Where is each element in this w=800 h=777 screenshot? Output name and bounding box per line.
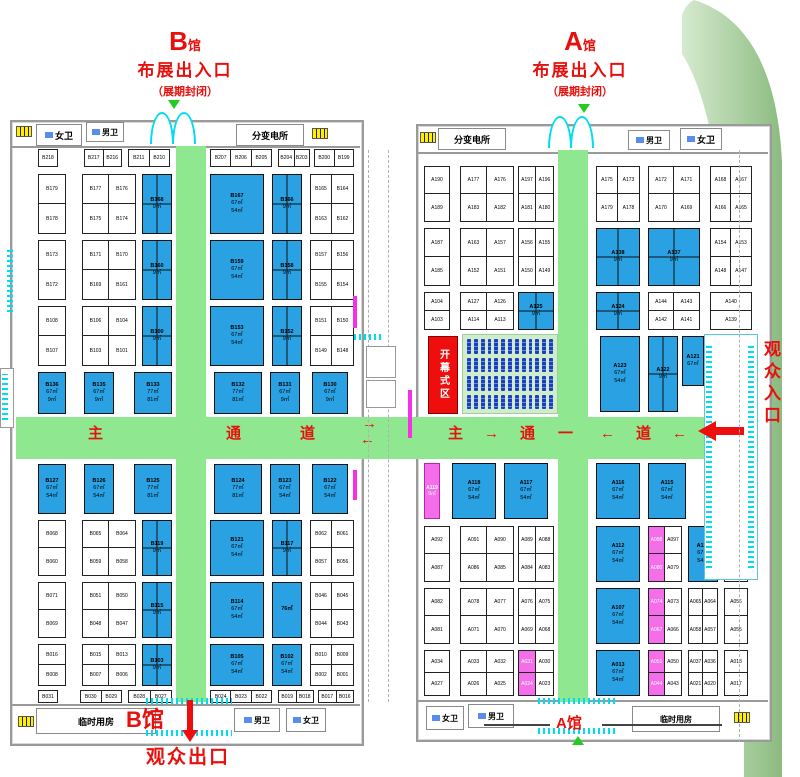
- booth-number: B016: [39, 645, 65, 665]
- booth-B158: B1589㎡: [272, 240, 302, 300]
- booth-number: A034: [425, 651, 449, 673]
- booth-line: 77㎡: [147, 485, 159, 492]
- exit-arrow-shaft: [187, 700, 193, 732]
- visitor-entrance-label: 观众入口: [762, 340, 779, 428]
- booth-number: A151: [487, 257, 513, 285]
- ceremony-seating: [462, 334, 558, 414]
- booth-A121: A12167㎡: [682, 336, 704, 386]
- booth-number: B216: [104, 150, 122, 166]
- booth-B133: B13377㎡81㎡: [134, 372, 172, 414]
- booth-B177: B177B176B175B174: [82, 174, 136, 234]
- corridor-room: [366, 346, 396, 378]
- seat-block: [467, 339, 471, 354]
- seat-block: [542, 395, 546, 410]
- booth-B173: B173B172: [38, 240, 66, 300]
- booth-B015: B015B013B007B006: [82, 644, 136, 686]
- aisle-text: 主: [88, 426, 103, 441]
- booth-number: A064: [703, 589, 717, 616]
- booth-line: A124: [611, 304, 624, 311]
- booth-line: 67㎡: [279, 389, 291, 396]
- booth-number: A076: [519, 589, 536, 616]
- seat-block: [474, 339, 478, 354]
- booth-A175: A175A173A179A178: [596, 166, 640, 222]
- seat-block: [515, 339, 519, 354]
- booth-B065: B065B064B059B058: [82, 520, 136, 576]
- seat-block: [467, 395, 471, 410]
- booth-number: A050: [665, 651, 681, 673]
- booth-B122: B12267㎡54㎡: [312, 464, 348, 514]
- seat-block: [542, 358, 546, 373]
- booth-number: A179: [597, 194, 618, 221]
- booth-number: A155: [536, 229, 553, 257]
- booth-B131: B13167㎡9㎡: [270, 372, 300, 414]
- booth-number: A020: [703, 673, 717, 695]
- booth-number: A032: [487, 651, 513, 673]
- booth-number: B046: [311, 583, 332, 610]
- seat-block: [508, 395, 512, 410]
- booth-line: 67㎡: [520, 487, 532, 494]
- aisle-text: 主: [448, 426, 463, 441]
- booth-number: A026: [461, 673, 487, 695]
- booth-number: A176: [487, 167, 513, 194]
- seat-block: [508, 376, 512, 391]
- booth-number: A197: [519, 167, 536, 194]
- booth-line: 76㎡: [281, 606, 293, 613]
- booth-number: B155: [311, 270, 332, 299]
- booth-A089: A089A088A084A083: [518, 526, 554, 582]
- booth-number: A080: [649, 554, 665, 581]
- booth-number: B176: [109, 175, 135, 204]
- booth-A034: A034A027: [424, 650, 450, 696]
- booth-line: 54㎡: [46, 493, 58, 500]
- booth-number: B044: [311, 610, 332, 637]
- booth-number: B179: [39, 175, 65, 204]
- booth-number: B059: [83, 548, 109, 575]
- booth-number: B108: [39, 307, 65, 336]
- booth-line: A122: [656, 367, 669, 374]
- booth-A033: A033A032A026A025: [460, 650, 514, 696]
- seat-block: [474, 376, 478, 391]
- booth-A156: A156A155A150A149: [518, 228, 554, 286]
- booth-number: A127: [461, 293, 487, 311]
- equipment-icon: [420, 132, 436, 143]
- booth-A104: A104A103: [424, 292, 450, 330]
- seat-block: [508, 358, 512, 373]
- booth-line: 67㎡: [93, 485, 105, 492]
- booth-A074: A074A073A067A066: [648, 588, 682, 644]
- booth-number: A023: [536, 673, 553, 695]
- booth-line: B115: [151, 603, 164, 610]
- booth-line: 9㎡: [283, 548, 292, 555]
- hall-a-suffix: 馆: [583, 38, 596, 53]
- booth-number: B170: [109, 241, 135, 270]
- booth-number: A104: [425, 293, 449, 311]
- booth-number: B043: [332, 610, 353, 637]
- booth-number: A175: [597, 167, 618, 194]
- booth-number: A084: [519, 554, 536, 581]
- booth-number: B048: [83, 610, 109, 637]
- booth-number: A073: [665, 589, 681, 616]
- booth-number: A017: [725, 673, 747, 695]
- booth-line: 9㎡: [153, 270, 162, 277]
- booth-line: 9㎡: [283, 270, 292, 277]
- booth-line: 54㎡: [520, 495, 532, 502]
- booth-number: B002: [311, 665, 332, 685]
- booth-line: A137: [667, 250, 680, 257]
- booth-B211: B211B210: [128, 149, 170, 167]
- booth-A140: A140A139: [710, 292, 752, 330]
- booth-line: 67㎡: [46, 389, 58, 396]
- seat-block: [488, 339, 492, 354]
- booth-line: 9㎡: [532, 311, 541, 318]
- booth-A091: A091A090A086A085: [460, 526, 514, 582]
- booth-line: 54㎡: [612, 677, 624, 684]
- room-substation-b: 分变电所: [236, 124, 304, 146]
- booth-number: A027: [425, 673, 449, 695]
- booth-number: A149: [536, 257, 553, 285]
- booth-number: A087: [425, 554, 449, 581]
- seat-block: [535, 395, 539, 410]
- booth-line: 9㎡: [326, 397, 335, 404]
- booth-line: 67㎡: [612, 612, 624, 619]
- booth-number: B174: [109, 204, 135, 233]
- ceremony-label: 开幕式区: [436, 349, 451, 401]
- booth-B152: B1529㎡: [272, 306, 302, 366]
- booth-A119: A1199㎡: [424, 463, 440, 519]
- booth-B217: B217B216: [84, 149, 122, 167]
- booth-number: A083: [536, 554, 553, 581]
- booth-A138: A1389㎡: [596, 228, 640, 286]
- booth-line: 54㎡: [612, 620, 624, 627]
- seat-block: [494, 395, 498, 410]
- booth-number: B151: [311, 307, 332, 336]
- booth-number: A070: [487, 616, 513, 643]
- booth-A177: A177A176A183A182: [460, 166, 514, 222]
- booth-number: A078: [461, 589, 487, 616]
- booth-line: 67㎡: [612, 550, 624, 557]
- seat-block: [481, 358, 485, 373]
- seat-block: [501, 339, 505, 354]
- booth-number: A067: [649, 616, 665, 643]
- booth-A056: A056A055: [724, 588, 748, 644]
- booth-B204: B204B203: [278, 149, 310, 167]
- booth-line: 67㎡: [231, 200, 243, 207]
- booth-line: 67㎡: [231, 544, 243, 551]
- seat-block: [522, 339, 526, 354]
- booth-number: A097: [665, 527, 681, 554]
- booth-number: A082: [425, 589, 449, 616]
- booth-A013: A01367㎡54㎡: [596, 650, 640, 696]
- booth-number: A055: [725, 616, 747, 643]
- booth-number: A092: [425, 527, 449, 554]
- booth-A018: A018A017: [724, 650, 748, 696]
- booth-number: A168: [711, 167, 731, 194]
- booth-B071: B071B069: [38, 582, 66, 638]
- booth-B100: B1009㎡: [142, 306, 172, 366]
- seat-block: [529, 358, 533, 373]
- folding-door-icon: [354, 334, 384, 340]
- booth-number: A018: [725, 651, 747, 673]
- booth-A118: A11867㎡54㎡: [452, 463, 496, 519]
- booth-line: 67㎡: [324, 485, 336, 492]
- booth-number: A066: [665, 616, 681, 643]
- booth-line: A121: [686, 354, 699, 361]
- booth-number: B009: [332, 645, 353, 665]
- seat-block: [481, 395, 485, 410]
- booth-layer: B218B217B216B211B210B207B206B205B204B203…: [0, 0, 800, 777]
- booth-number: A182: [487, 194, 513, 221]
- booth-line: B117: [281, 541, 294, 548]
- booth-line: 54㎡: [231, 552, 243, 559]
- booth-number: B205: [252, 150, 271, 166]
- gate-marker-icon: [578, 104, 590, 113]
- booth-number: B010: [311, 645, 332, 665]
- booth-line: 9㎡: [153, 610, 162, 617]
- booth-A078: A078A077A071A070: [460, 588, 514, 644]
- booth-number: B207: [211, 150, 231, 166]
- booth-B200: B200B199: [314, 149, 354, 167]
- booth-B115: B1159㎡: [142, 582, 172, 638]
- booth-A127: A127A126A114A113: [460, 292, 514, 330]
- booth-B016: B016B008: [38, 644, 66, 686]
- booth-number: B050: [109, 583, 135, 610]
- booth-number: A189: [425, 194, 449, 221]
- aisle-text: 一: [558, 426, 573, 441]
- booth-line: 54㎡: [231, 274, 243, 281]
- booth-number: A098: [649, 527, 665, 554]
- booth-number: B017: [319, 691, 337, 702]
- booth-number: B149: [311, 336, 332, 365]
- exit-arrow-icon: [182, 730, 198, 742]
- booth-number: A169: [674, 194, 699, 221]
- booth-number: B210: [150, 150, 170, 166]
- equipment-icon: [312, 128, 328, 139]
- booth-line: 54㎡: [468, 495, 480, 502]
- seat-block: [474, 358, 478, 373]
- booth-line: 67㎡: [279, 485, 291, 492]
- booth-line: 9㎡: [48, 397, 57, 404]
- booth-line: 9㎡: [153, 204, 162, 211]
- booth-A124: A1249㎡: [596, 292, 640, 330]
- booth-A115: A11567㎡54㎡: [648, 463, 686, 519]
- booth-B160: B1609㎡: [142, 240, 172, 300]
- booth-B207: B207B206B205: [210, 149, 272, 167]
- booth-A107: A10767㎡54㎡: [596, 588, 640, 644]
- booth-number: A156: [519, 229, 536, 257]
- folding-door-icon: [706, 344, 712, 568]
- booth-B117: B1179㎡: [272, 520, 302, 576]
- booth-line: 67㎡: [231, 661, 243, 668]
- booth-line: 81㎡: [147, 493, 159, 500]
- booth-B105: B10567㎡54㎡: [210, 644, 264, 686]
- entrance-arrow-icon: [698, 421, 716, 441]
- booth-line: 81㎡: [147, 397, 159, 404]
- dashed-line: [368, 150, 369, 702]
- seat-block: [535, 376, 539, 391]
- booth-number: A090: [487, 527, 513, 554]
- booth-A123: A12367㎡54㎡: [600, 336, 640, 412]
- booth-line: 54㎡: [231, 669, 243, 676]
- booth-line: B160: [150, 263, 163, 270]
- booth-B108: B108B107: [38, 306, 66, 366]
- booth-A082: A082A081: [424, 588, 450, 644]
- booth-number: B154: [332, 270, 353, 299]
- booth-A137: A1379㎡: [648, 228, 700, 286]
- booth-B166: B1669㎡: [272, 174, 302, 234]
- main-aisle-vertical-B: [176, 146, 206, 702]
- wall-segment: [602, 724, 722, 726]
- booth-B136: B13667㎡9㎡: [38, 372, 66, 414]
- booth-76㎡: 76㎡: [272, 582, 302, 638]
- seat-block: [467, 376, 471, 391]
- booth-number: A150: [519, 257, 536, 285]
- booth-A168: A168A167A166A165: [710, 166, 752, 222]
- room-female-wc-b-bottom: 女卫: [286, 708, 326, 732]
- booth-line: A138: [611, 250, 624, 257]
- seat-block: [481, 339, 485, 354]
- room-female-wc-b-top: 女卫: [36, 124, 82, 146]
- wall-segment: [484, 724, 550, 726]
- room-male-wc-b-bottom: 男卫: [234, 708, 280, 732]
- booth-number: B200: [315, 150, 335, 166]
- aisle-text: 道: [636, 426, 651, 441]
- booth-A112: A11267㎡54㎡: [596, 526, 640, 582]
- folding-door-icon: [748, 344, 754, 568]
- booth-B030: B030B029: [80, 690, 122, 703]
- booth-line: 67㎡: [612, 669, 624, 676]
- aisle-text: ←: [672, 426, 687, 441]
- booth-number: A077: [487, 589, 513, 616]
- booth-B051: B051B050B048B047: [82, 582, 136, 638]
- booth-B130: B13067㎡9㎡: [312, 372, 348, 414]
- booth-number: B001: [332, 665, 353, 685]
- hall-b-gate-title: B馆 布展出入口 （展期封闭）: [105, 28, 265, 99]
- booth-number: A144: [649, 293, 674, 311]
- booth-A065: A065A064A058A057: [688, 588, 718, 644]
- booth-number: A081: [425, 616, 449, 643]
- booth-line: 9㎡: [153, 665, 162, 672]
- booth-number: B008: [39, 665, 65, 685]
- booth-number: B218: [39, 150, 57, 166]
- hall-a-entrance-label: A馆: [556, 712, 582, 733]
- booth-number: B171: [83, 241, 109, 270]
- booth-B106: B106B104B103B101: [82, 306, 136, 366]
- booth-A187: A187A185: [424, 228, 450, 286]
- booth-number: A065: [689, 589, 703, 616]
- booth-number: A172: [649, 167, 674, 194]
- booth-line: 9㎡: [153, 548, 162, 555]
- booth-number: B178: [39, 204, 65, 233]
- booth-number: B204: [279, 150, 295, 166]
- booth-line: 54㎡: [661, 495, 673, 502]
- booth-B165: B165B164B163B162: [310, 174, 354, 234]
- equipment-icon: [18, 716, 34, 727]
- booth-number: A147: [731, 257, 751, 285]
- booth-line: 67㎡: [661, 487, 673, 494]
- booth-line: 54㎡: [231, 340, 243, 347]
- booth-B102: B10267㎡54㎡: [272, 644, 302, 686]
- booth-number: B164: [332, 175, 353, 204]
- booth-number: B157: [311, 241, 332, 270]
- booth-B125: B12577㎡81㎡: [134, 464, 172, 514]
- room-female-wc-a-top: 女卫: [680, 128, 722, 150]
- seat-block: [549, 339, 553, 354]
- booth-A031: A031A030A024A023: [518, 650, 554, 696]
- folding-door-icon: [2, 374, 8, 420]
- booth-number: A024: [519, 673, 536, 695]
- booth-number: A044: [649, 673, 665, 695]
- booth-number: B007: [83, 665, 109, 685]
- booth-number: A126: [487, 293, 513, 311]
- booth-number: A190: [425, 167, 449, 194]
- booth-number: A157: [487, 229, 513, 257]
- booth-line: 67㎡: [468, 487, 480, 494]
- booth-line: 67㎡: [612, 487, 624, 494]
- booth-B103: B1039㎡: [142, 644, 172, 686]
- booth-number: B006: [109, 665, 135, 685]
- booth-number: B169: [83, 270, 109, 299]
- booth-number: A025: [487, 673, 513, 695]
- booth-number: A180: [536, 194, 553, 221]
- booth-line: 67㎡: [687, 361, 699, 368]
- booth-B159: B15967㎡54㎡: [210, 240, 264, 300]
- booth-number: B015: [83, 645, 109, 665]
- booth-number: B150: [332, 307, 353, 336]
- booth-number: B060: [39, 548, 65, 575]
- booth-number: B104: [109, 307, 135, 336]
- booth-B153: B15367㎡54㎡: [210, 306, 264, 366]
- booth-line: 9㎡: [428, 491, 436, 498]
- booth-number: B162: [332, 204, 353, 233]
- booth-line: 9㎡: [95, 397, 104, 404]
- booth-number: A153: [731, 229, 751, 257]
- booth-number: B058: [109, 548, 135, 575]
- booth-number: B045: [332, 583, 353, 610]
- booth-line: 9㎡: [153, 336, 162, 343]
- hall-b-gate-line2: 布展出入口: [105, 56, 265, 81]
- booth-line: 77㎡: [232, 389, 244, 396]
- booth-number: B068: [39, 521, 65, 548]
- hall-b-exit-label: B馆: [126, 702, 164, 734]
- booth-number: B018: [297, 691, 314, 702]
- seat-block: [474, 395, 478, 410]
- booth-number: A103: [425, 311, 449, 329]
- aisle-text: →: [484, 426, 499, 441]
- booth-B157: B157B156B155B154: [310, 240, 354, 300]
- booth-A098: A098A097A080A079: [648, 526, 682, 582]
- booth-number: B064: [109, 521, 135, 548]
- booth-number: A071: [461, 616, 487, 643]
- seat-block: [535, 358, 539, 373]
- booth-line: B166: [280, 197, 293, 204]
- booth-number: B217: [85, 150, 104, 166]
- booth-number: A075: [536, 589, 553, 616]
- booth-number: A152: [461, 257, 487, 285]
- booth-number: A086: [461, 554, 487, 581]
- booth-number: A177: [461, 167, 487, 194]
- booth-A037: A037A036A021A020: [688, 650, 718, 696]
- visitor-exit-label: 观众出口: [146, 742, 230, 769]
- booth-number: A165: [731, 194, 751, 221]
- booth-number: A030: [536, 651, 553, 673]
- booth-line: B168: [150, 197, 163, 204]
- equipment-icon: [16, 126, 32, 137]
- booth-number: A178: [618, 194, 639, 221]
- booth-number: B161: [109, 270, 135, 299]
- booth-line: 81㎡: [232, 493, 244, 500]
- booth-line: B103: [150, 658, 163, 665]
- booth-number: B051: [83, 583, 109, 610]
